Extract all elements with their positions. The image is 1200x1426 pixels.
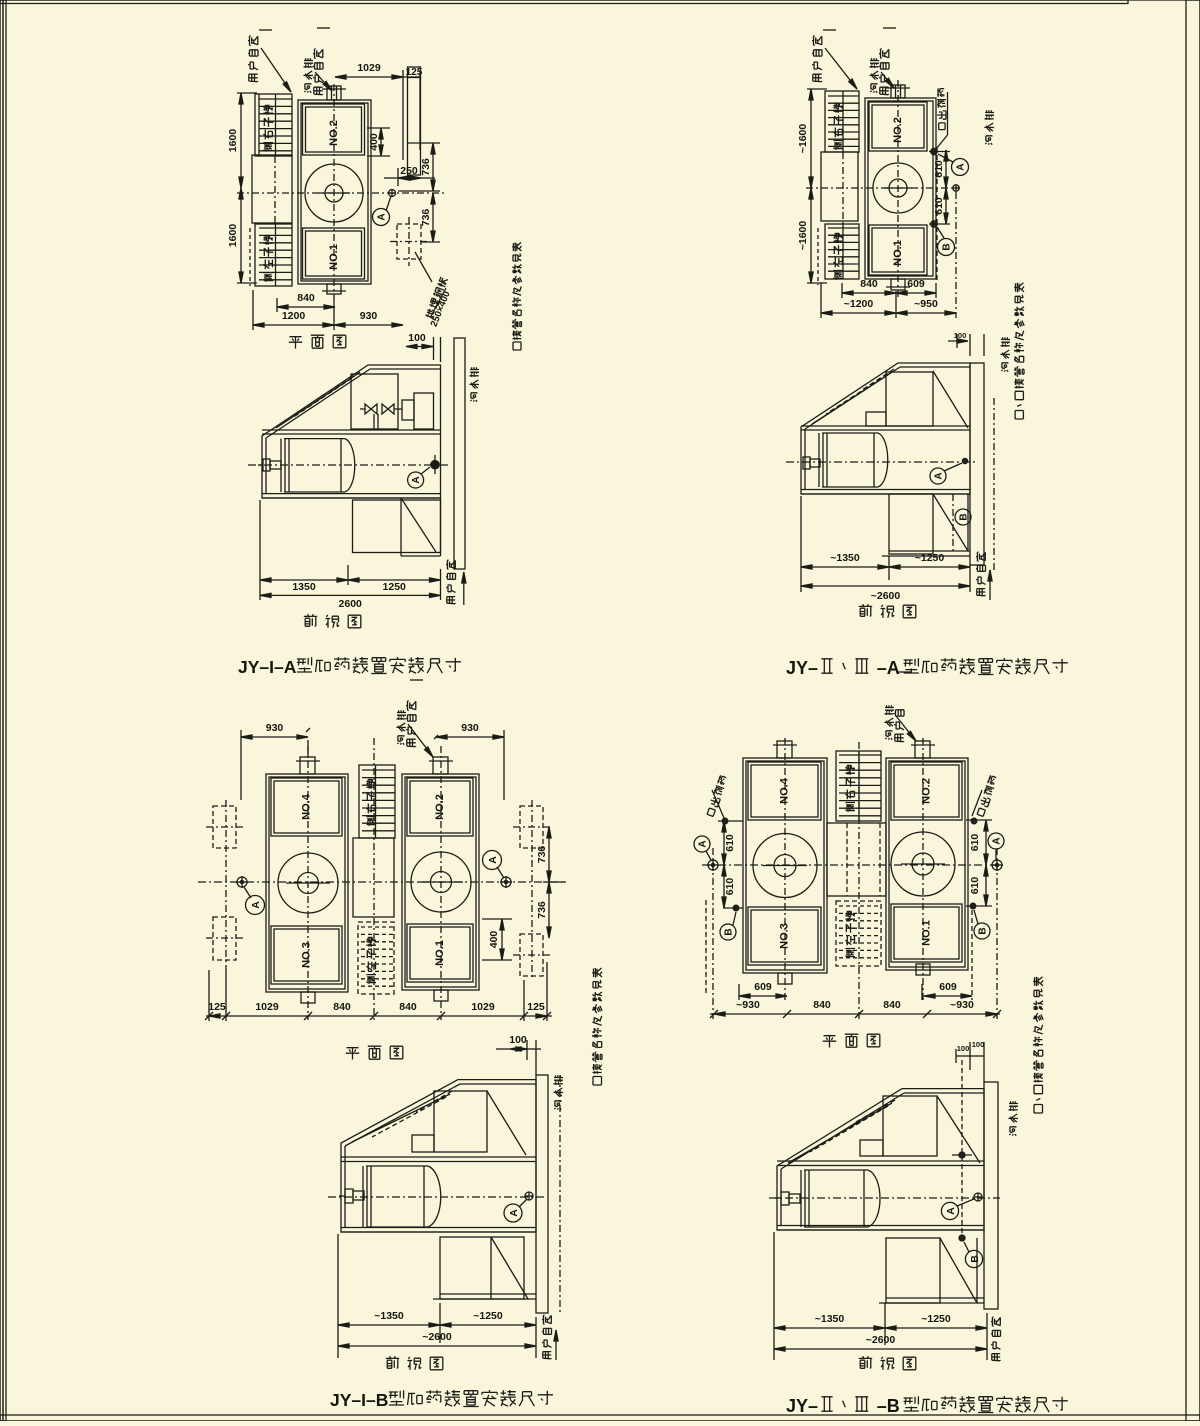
svg-text:NO.1: NO.1 bbox=[434, 940, 446, 966]
svg-text:A: A bbox=[945, 1207, 957, 1215]
svg-text:NO.4: NO.4 bbox=[779, 777, 791, 804]
svg-text:NO.2: NO.2 bbox=[921, 778, 933, 804]
svg-text:930: 930 bbox=[266, 722, 284, 734]
svg-text:~2600: ~2600 bbox=[871, 590, 901, 602]
svg-text:250: 250 bbox=[400, 165, 418, 177]
svg-text:JY–I–A: JY–I–A bbox=[238, 657, 297, 677]
svg-text:A: A bbox=[698, 840, 709, 847]
svg-text:1250: 1250 bbox=[383, 581, 407, 593]
svg-text:B: B bbox=[969, 1255, 981, 1263]
svg-text:840: 840 bbox=[813, 999, 831, 1011]
svg-text:840: 840 bbox=[333, 1001, 351, 1013]
svg-text:100: 100 bbox=[972, 1040, 985, 1049]
svg-text:610: 610 bbox=[969, 877, 981, 895]
svg-text:930: 930 bbox=[461, 722, 479, 734]
svg-text:1029: 1029 bbox=[357, 62, 381, 74]
svg-text:610: 610 bbox=[933, 160, 945, 178]
svg-text:100: 100 bbox=[957, 1044, 970, 1053]
svg-text:B: B bbox=[959, 513, 970, 520]
svg-text:B: B bbox=[978, 927, 989, 934]
svg-text:NO.2: NO.2 bbox=[892, 117, 904, 143]
svg-text:100: 100 bbox=[954, 331, 967, 340]
svg-text:–A: –A bbox=[877, 658, 900, 678]
svg-text:1200: 1200 bbox=[282, 310, 306, 322]
svg-text:JY–I–B: JY–I–B bbox=[330, 1390, 388, 1410]
svg-text:840: 840 bbox=[883, 999, 901, 1011]
svg-text:400: 400 bbox=[488, 931, 500, 949]
svg-text:610: 610 bbox=[724, 834, 736, 852]
svg-text:400: 400 bbox=[368, 133, 380, 151]
svg-text:NO.3: NO.3 bbox=[301, 942, 313, 968]
svg-text:~930: ~930 bbox=[736, 999, 760, 1011]
svg-text:~1600: ~1600 bbox=[797, 124, 809, 154]
svg-text:1600: 1600 bbox=[227, 224, 239, 248]
svg-text:A: A bbox=[508, 1209, 520, 1217]
svg-text:609: 609 bbox=[754, 981, 772, 993]
svg-text:609: 609 bbox=[907, 278, 925, 290]
svg-text:736: 736 bbox=[536, 901, 548, 919]
svg-text:~1250: ~1250 bbox=[921, 1313, 951, 1325]
svg-text:736: 736 bbox=[420, 209, 432, 227]
svg-text:NO.4: NO.4 bbox=[301, 793, 313, 820]
svg-text:NO.1: NO.1 bbox=[921, 920, 933, 946]
svg-text:125: 125 bbox=[527, 1001, 545, 1013]
svg-text:JY–: JY– bbox=[786, 1396, 818, 1416]
svg-text:736: 736 bbox=[420, 158, 432, 176]
svg-text:~1600: ~1600 bbox=[797, 221, 809, 251]
svg-text:NO.2: NO.2 bbox=[328, 120, 340, 146]
svg-text:A: A bbox=[377, 213, 388, 220]
svg-text:610: 610 bbox=[724, 878, 736, 896]
svg-text:736: 736 bbox=[536, 846, 548, 864]
svg-text:609: 609 bbox=[939, 981, 957, 993]
svg-text:~1200: ~1200 bbox=[844, 298, 874, 310]
svg-text:930: 930 bbox=[360, 310, 378, 322]
svg-text:840: 840 bbox=[399, 1001, 417, 1013]
svg-text:840: 840 bbox=[297, 292, 315, 304]
svg-text:610: 610 bbox=[933, 197, 945, 215]
svg-text:~930: ~930 bbox=[950, 999, 974, 1011]
svg-text:1600: 1600 bbox=[227, 129, 239, 153]
svg-text:1350: 1350 bbox=[292, 581, 316, 593]
svg-text:B: B bbox=[942, 243, 953, 250]
svg-text:840: 840 bbox=[860, 278, 878, 290]
svg-text:~1350: ~1350 bbox=[830, 552, 860, 564]
svg-text:~1250: ~1250 bbox=[473, 1310, 503, 1322]
svg-text:B: B bbox=[724, 928, 735, 935]
svg-text:A: A bbox=[487, 856, 499, 864]
svg-text:A: A bbox=[934, 472, 945, 479]
svg-text:100: 100 bbox=[408, 332, 426, 344]
svg-text:NO.1: NO.1 bbox=[892, 240, 904, 266]
svg-text:100: 100 bbox=[509, 1034, 527, 1046]
svg-text:NO.1: NO.1 bbox=[328, 244, 340, 270]
svg-text:NO.2: NO.2 bbox=[434, 794, 446, 820]
svg-text:610: 610 bbox=[969, 834, 981, 852]
svg-text:1029: 1029 bbox=[471, 1001, 495, 1013]
svg-text:A: A bbox=[956, 163, 967, 170]
svg-text:A: A bbox=[411, 476, 422, 483]
svg-text:~1350: ~1350 bbox=[815, 1313, 845, 1325]
svg-text:1029: 1029 bbox=[255, 1001, 279, 1013]
svg-text:~950: ~950 bbox=[914, 298, 938, 310]
svg-text:A: A bbox=[992, 837, 1003, 844]
svg-text:~1350: ~1350 bbox=[374, 1310, 404, 1322]
svg-text:2600: 2600 bbox=[339, 598, 363, 610]
svg-text:NO.3: NO.3 bbox=[779, 923, 791, 949]
svg-text:~2600: ~2600 bbox=[422, 1331, 452, 1343]
svg-text:JY–: JY– bbox=[786, 658, 818, 678]
svg-text:A: A bbox=[250, 901, 262, 909]
svg-text:~2600: ~2600 bbox=[866, 1334, 896, 1346]
svg-text:~1250: ~1250 bbox=[915, 552, 945, 564]
svg-text:250×400: 250×400 bbox=[429, 290, 453, 329]
svg-text:–B: –B bbox=[877, 1396, 900, 1416]
svg-text:125: 125 bbox=[208, 1001, 226, 1013]
